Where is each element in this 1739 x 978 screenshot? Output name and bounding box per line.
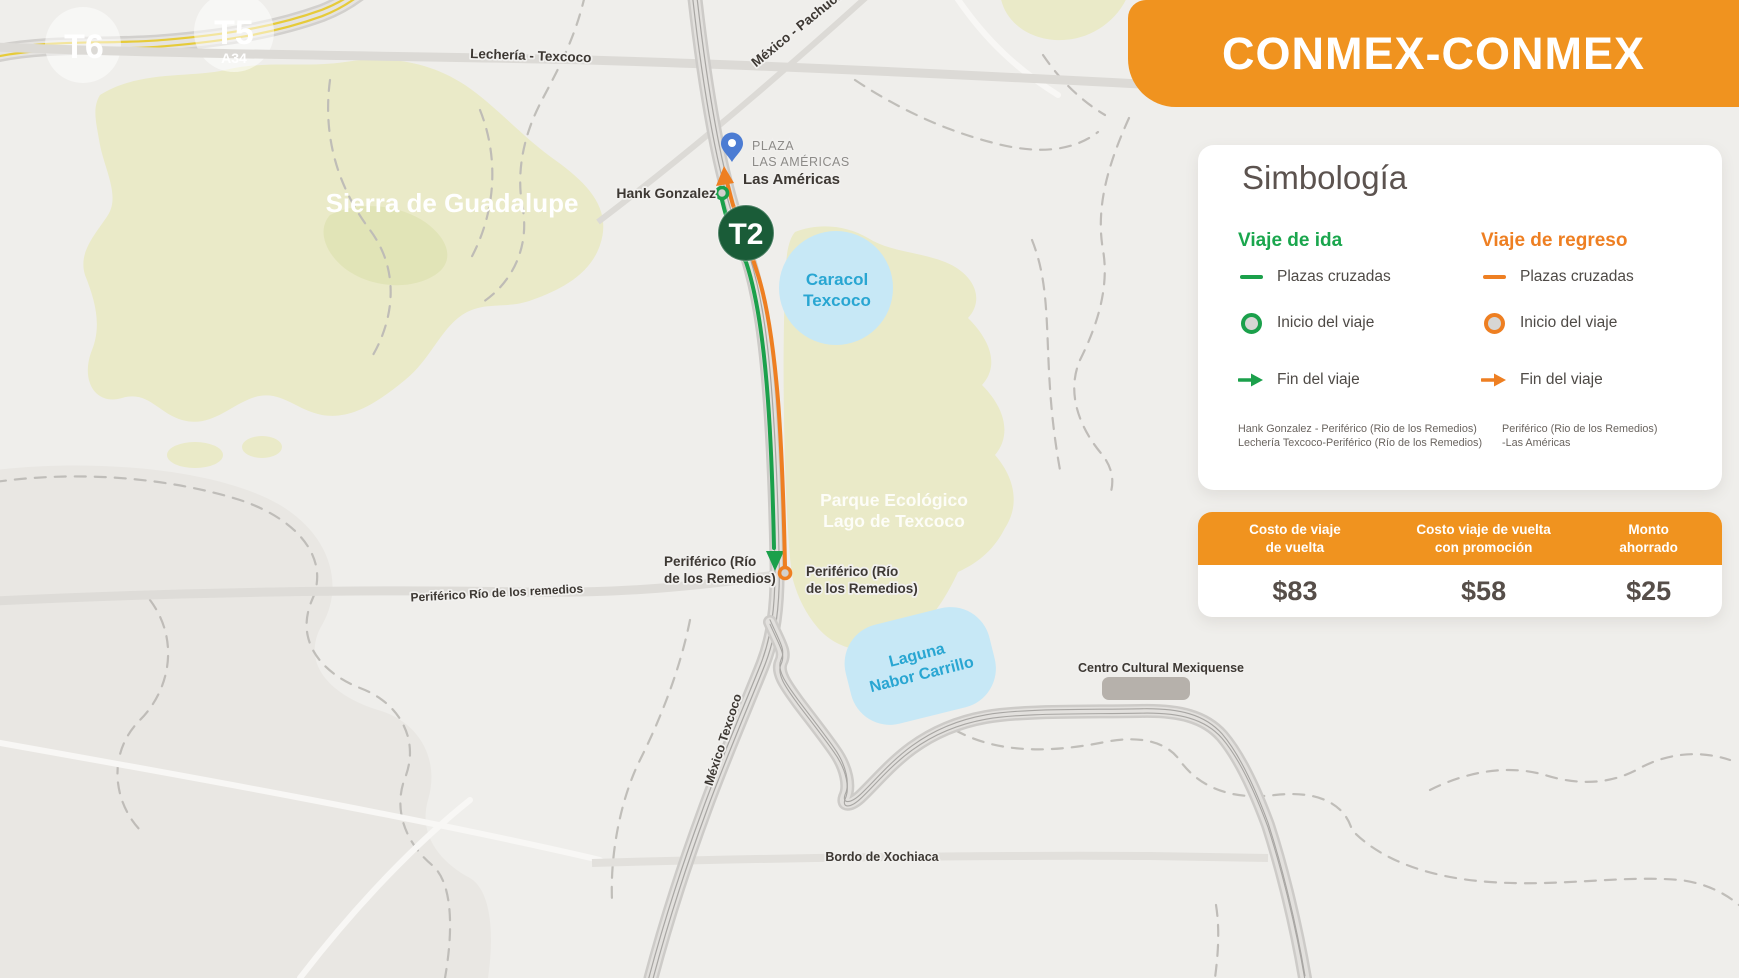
legend-footnote-regreso: Periférico (Rio de los Remedios) -Las Am… [1502, 422, 1657, 451]
legend-item-label: Plazas cruzadas [1520, 268, 1634, 286]
legend-item-ida-plazas: Plazas cruzadas [1238, 267, 1391, 287]
footnote-line: Lechería Texcoco-Periférico (Río de los … [1238, 436, 1482, 450]
place-label-sierra: Sierra de Guadalupe [326, 188, 579, 218]
inicio-viaje-orange-circle-icon [1481, 313, 1507, 334]
infographic-canvas: T2 T6 T5 A34 Lechería - Texcoco México -… [0, 0, 1739, 978]
legend-title: Simbología [1242, 159, 1407, 197]
legend-item-label: Fin del viaje [1277, 371, 1360, 389]
toll-label-t5-sub: A34 [221, 50, 247, 66]
place-label-periferico-left-1: Periférico (Río [664, 554, 756, 569]
cost-header-ahorrado: Monto ahorrado [1575, 512, 1722, 565]
legend-item-regreso-inicio: Inicio del viaje [1481, 313, 1617, 333]
plazas-cruzadas-green-line-icon [1238, 275, 1264, 279]
legend-item-label: Inicio del viaje [1520, 314, 1617, 332]
place-label-caracol-2: Texcoco [803, 291, 871, 310]
legend-column-ida-title: Viaje de ida [1238, 230, 1342, 252]
route-regreso-start-marker [780, 568, 791, 579]
legend-item-label: Fin del viaje [1520, 371, 1603, 389]
place-label-hank-gonzalez: Hank Gonzalez [616, 185, 716, 201]
region-sierra-blob-2 [242, 436, 282, 458]
cost-table-header-row: Costo de viaje de vuelta Costo viaje de … [1198, 512, 1722, 565]
cost-value-vuelta: $83 [1198, 565, 1392, 617]
footnote-line: -Las Américas [1502, 436, 1657, 450]
place-label-periferico-right-2: de los Remedios) [806, 581, 918, 596]
place-label-periferico-right-1: Periférico (Río [806, 564, 898, 579]
toll-badge-t2-label: T2 [728, 218, 763, 251]
legend-item-ida-inicio: Inicio del viaje [1238, 313, 1374, 333]
plazas-cruzadas-orange-line-icon [1481, 275, 1507, 279]
footnote-line: Hank Gonzalez - Periférico (Rio de los R… [1238, 422, 1482, 436]
toll-label-t5: T5 [214, 14, 254, 52]
page-header: CONMEX-CONMEX [1128, 0, 1739, 107]
page-title: CONMEX-CONMEX [1222, 28, 1645, 80]
place-label-caracol-1: Caracol [806, 270, 868, 289]
cost-table: Costo de viaje de vuelta Costo viaje de … [1198, 512, 1722, 617]
place-label-las-americas: Las Américas [743, 171, 840, 188]
legend-item-regreso-plazas: Plazas cruzadas [1481, 267, 1634, 287]
place-label-parque-2: Lago de Texcoco [823, 511, 965, 531]
legend-item-regreso-fin: Fin del viaje [1481, 370, 1603, 390]
place-label-parque-1: Parque Ecológico [820, 490, 968, 510]
cost-header-vuelta: Costo de viaje de vuelta [1198, 512, 1392, 565]
fin-viaje-green-arrow-icon [1238, 372, 1264, 388]
place-label-plaza-2: LAS AMÉRICAS [752, 154, 850, 169]
footnote-line: Periférico (Rio de los Remedios) [1502, 422, 1657, 436]
road-label-bordo: Bordo de Xochiaca [825, 850, 939, 864]
place-label-periferico-left-2: de los Remedios) [664, 571, 776, 586]
legend-item-ida-fin: Fin del viaje [1238, 370, 1360, 390]
legend-column-regreso-title: Viaje de regreso [1481, 230, 1627, 252]
cost-value-promocion: $58 [1392, 565, 1575, 617]
building-centro-cultural [1102, 677, 1190, 700]
legend-item-label: Plazas cruzadas [1277, 268, 1391, 286]
toll-label-t6: T6 [64, 28, 104, 66]
legend-card: Simbología Viaje de ida Viaje de regreso… [1198, 145, 1722, 490]
place-label-centro-cultural: Centro Cultural Mexiquense [1078, 661, 1244, 675]
inicio-viaje-green-circle-icon [1238, 313, 1264, 334]
cost-value-ahorrado: $25 [1575, 565, 1722, 617]
plaza-pin-dot [728, 139, 736, 147]
fin-viaje-orange-arrow-icon [1481, 372, 1507, 388]
cost-table-value-row: $83 $58 $25 [1198, 565, 1722, 617]
route-ida-start-marker [717, 188, 728, 199]
legend-item-label: Inicio del viaje [1277, 314, 1374, 332]
legend-footnote-ida: Hank Gonzalez - Periférico (Rio de los R… [1238, 422, 1482, 451]
region-sierra-blob-1 [167, 442, 223, 468]
place-label-plaza-1: PLAZA [752, 139, 794, 153]
cost-header-promocion: Costo viaje de vuelta con promoción [1392, 512, 1575, 565]
